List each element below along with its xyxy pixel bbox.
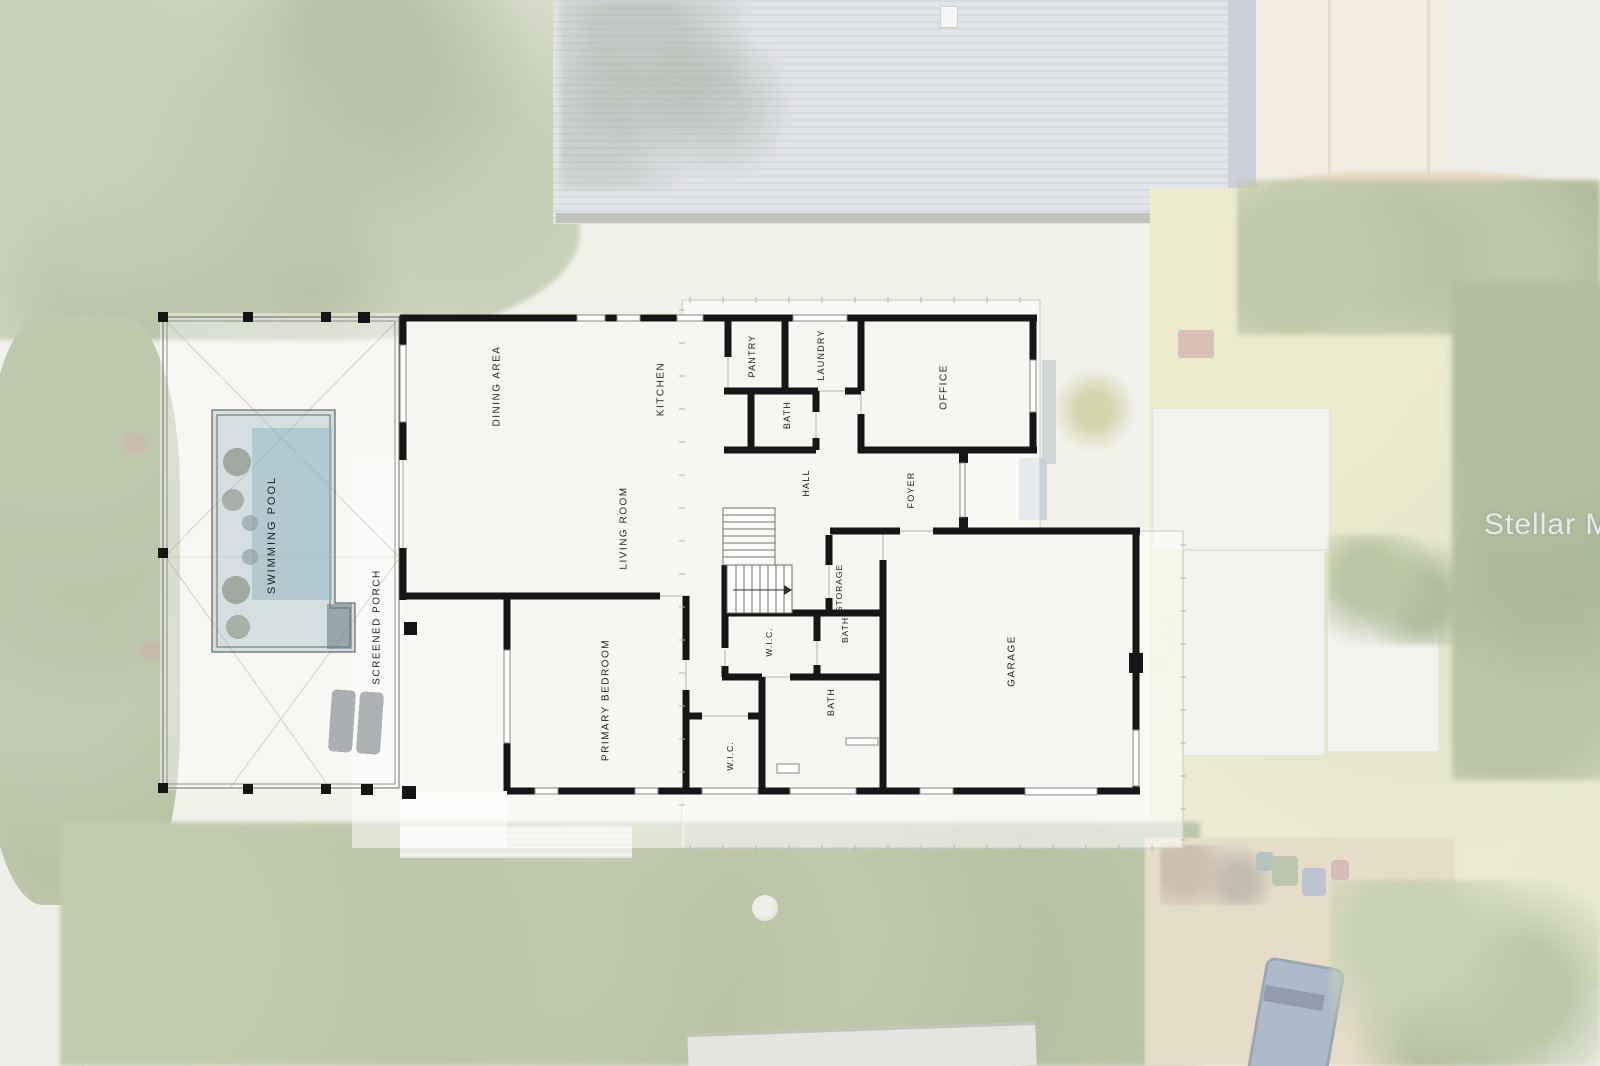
entry-jamb: [959, 450, 968, 463]
mls-watermark: Stellar MLS: [1484, 508, 1600, 542]
porch-column: [404, 622, 417, 635]
swimming-pool-outline: [212, 410, 355, 652]
corner-column: [402, 786, 416, 799]
aerial-floor-plan-image: SWIMMING POOLSCREENED PORCHDINING AREAKI…: [0, 0, 1600, 1066]
garage-door-jamb: [1129, 653, 1143, 673]
floor-plan-svg: [0, 0, 1600, 1066]
plan-apron: [400, 791, 684, 848]
entry-jamb: [959, 517, 968, 530]
